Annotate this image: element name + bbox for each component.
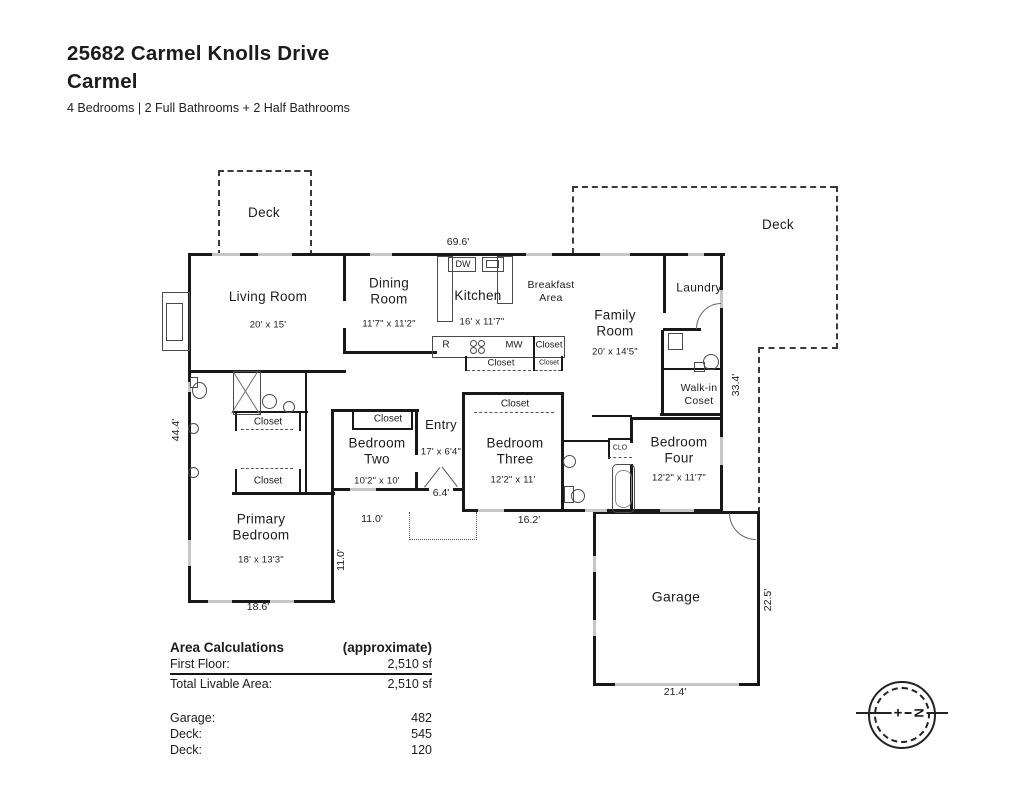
wall [593,511,596,686]
room-dims-kitchen: 16' x 11'7" [460,317,505,328]
closet-wall [533,356,535,371]
window-marker [258,253,292,256]
deck-outline [218,170,310,172]
cooktop-icon [470,347,477,354]
address-line: 25682 Carmel Knolls Drive [67,40,350,68]
area-row-label: First Floor: [170,656,230,672]
room-label-dining: Dining Room [360,276,418,309]
closet-wall [561,356,563,371]
wall [661,330,664,416]
compass-north-label: N [912,707,927,718]
sink-icon [668,333,683,350]
kitchen-sink-icon [486,260,499,268]
stoop-outline [409,539,477,540]
sink-icon [188,423,199,434]
closet-label: Closet [488,358,515,369]
wall [331,491,334,603]
wall [331,409,334,491]
deck-outline [758,347,838,349]
stoop-outline [476,512,477,540]
closet-label: Closet [254,476,282,487]
room-dims-primary: 18' x 13'3" [238,555,284,566]
sink-icon [563,455,576,468]
deck-outline [572,186,574,254]
wall [331,409,419,412]
closet-opening [535,370,561,371]
bathtub-icon [615,470,632,508]
area-row-total-livable: Total Livable Area: 2,510 sf [170,676,432,692]
dim-top-width: 69.6' [447,236,469,248]
toilet-icon [190,377,198,388]
range-label: R [442,340,449,351]
dim-primary-width: 18.6' [247,601,269,613]
window-marker [270,600,294,603]
dishwasher-label: DW [456,259,471,269]
wall [561,440,610,442]
area-row-value: 120 [411,742,432,758]
closet-wall [352,428,413,430]
wall [343,351,437,354]
wall [343,253,346,301]
window-marker [188,540,191,566]
window-marker [688,253,704,256]
closet-opening [241,468,293,469]
dim-bedroom3-width: 16.2' [518,514,540,526]
sink-icon [188,467,199,478]
closet-label: Closet [536,340,563,351]
dim-right-height: 33.4' [730,374,742,396]
area-calculations-table: Area Calculations (approximate) First Fl… [170,639,432,758]
table-divider [170,673,432,675]
closet-wall [608,438,610,459]
closet-wall [235,469,237,493]
room-label-living: Living Room [229,289,307,305]
room-label-bedroom-four: Bedroom Four [644,435,714,468]
beds-baths-summary: 4 Bedrooms | 2 Full Bathrooms + 2 Half B… [67,101,350,115]
wall [757,511,760,686]
deck-outline [310,170,312,256]
deck-outline [758,347,760,513]
floor-plan-sheet: 25682 Carmel Knolls Drive Carmel 4 Bedro… [0,0,1024,791]
window-marker [720,437,723,465]
compass-center: + [892,705,905,722]
dim-garage-height: 22.5' [762,589,774,611]
room-label-kitchen: Kitchen [454,288,501,304]
closet-wall [608,438,632,440]
area-row-deck-2: Deck: 120 [170,742,432,758]
wall [232,492,335,495]
closet-label: Closet [539,360,559,367]
window-marker [585,509,607,512]
closet-label: Closet [501,399,529,410]
area-row-deck-1: Deck: 545 [170,726,432,742]
closet-opening [241,429,293,430]
area-row-value: 2,510 sf [388,676,432,692]
dim-garage-width: 21.4' [664,686,686,698]
closet-opening [474,412,554,413]
closet-label: Closet [254,417,282,428]
wall [592,415,632,417]
room-label-entry: Entry [425,417,457,433]
room-label-deck-left: Deck [248,205,280,221]
window-marker [593,620,596,636]
room-label-garage: Garage [652,588,701,605]
wall [415,488,429,491]
window-marker [526,253,552,256]
dim-entry-width: 6.4' [433,487,450,499]
cooktop-icon [478,340,485,347]
cooktop-icon [470,340,477,347]
window-marker [350,488,376,491]
area-row-value: 482 [411,710,432,726]
closet-wall [299,413,301,431]
closet-wall [465,356,467,371]
entry-door-icon [442,467,458,487]
window-marker [212,253,240,256]
room-label-walkin-closet: Walk-in Coset [673,382,725,408]
deck-outline [218,170,220,256]
window-marker [593,556,596,572]
small-closet-label: CLO [613,445,627,452]
room-dims-bedroom-four: 12'2" x 11'7" [652,473,706,484]
closet-wall [235,413,237,431]
window-marker [660,509,694,512]
wall [462,392,564,395]
area-row-first-floor: First Floor: 2,510 sf [170,656,432,672]
sink-icon [262,394,277,409]
cooktop-icon [478,347,485,354]
wall [415,409,418,455]
room-dims-entry: 17' x 6'4" [421,447,461,458]
deck-outline [836,186,838,349]
microwave-label: MW [506,340,523,351]
window-marker [208,600,232,603]
area-row-value: 545 [411,726,432,742]
room-dims-family: 20' x 14'5" [592,347,638,358]
city-line: Carmel [67,68,350,96]
wall [630,417,723,420]
area-row-value: 2,510 sf [388,656,432,672]
room-label-family: Family Room [587,308,643,341]
header: 25682 Carmel Knolls Drive Carmel 4 Bedro… [67,40,350,115]
window-marker [600,253,630,256]
deck-outline [572,186,836,188]
wall [663,253,666,313]
room-label-bedroom-two: Bedroom Two [342,436,412,469]
area-row-label: Total Livable Area: [170,676,272,692]
door-arc-icon [729,513,756,540]
area-row-label: Garage: [170,710,215,726]
door-arc-icon [696,303,721,329]
room-dims-living: 20' x 15' [250,320,287,331]
wall [305,370,307,494]
area-table-qualifier: (approximate) [343,639,432,656]
closet-wall [352,409,354,430]
closet-wall [411,409,413,430]
area-table-title: Area Calculations [170,639,284,656]
wall [462,392,465,512]
entry-door-icon [424,467,440,487]
sink-icon [283,401,295,413]
room-label-laundry: Laundry [676,281,721,296]
wall [660,413,723,416]
dim-bedroom2-width: 11.0' [361,513,383,525]
closet-opening [608,457,632,458]
room-dims-bedroom-three: 12'2" x 11' [491,475,536,486]
wall [188,370,346,373]
closet-label: Closet [374,414,402,425]
room-dims-bedroom-two: 10'2" x 10' [354,476,400,487]
closet-wall [299,469,301,493]
room-dims-dining: 11'7" x 11'2" [362,319,415,330]
window-marker [478,509,504,512]
closet-opening [467,370,531,371]
room-label-primary: Primary Bedroom [218,512,304,545]
room-label-bedroom-three: Bedroom Three [479,436,551,469]
room-label-deck-right: Deck [762,217,794,233]
room-label-breakfast: Breakfast Area [518,279,584,305]
toilet-icon [571,489,585,503]
area-row-label: Deck: [170,742,202,758]
dim-primary-side: 11.0' [335,549,347,571]
area-row-label: Deck: [170,726,202,742]
toilet-icon [703,354,719,370]
stoop-outline [409,512,410,540]
toilet-icon [694,362,705,372]
fireplace-icon [166,303,183,341]
area-row-garage: Garage: 482 [170,710,432,726]
window-marker [370,253,392,256]
dim-left-height: 44.4' [170,419,182,441]
